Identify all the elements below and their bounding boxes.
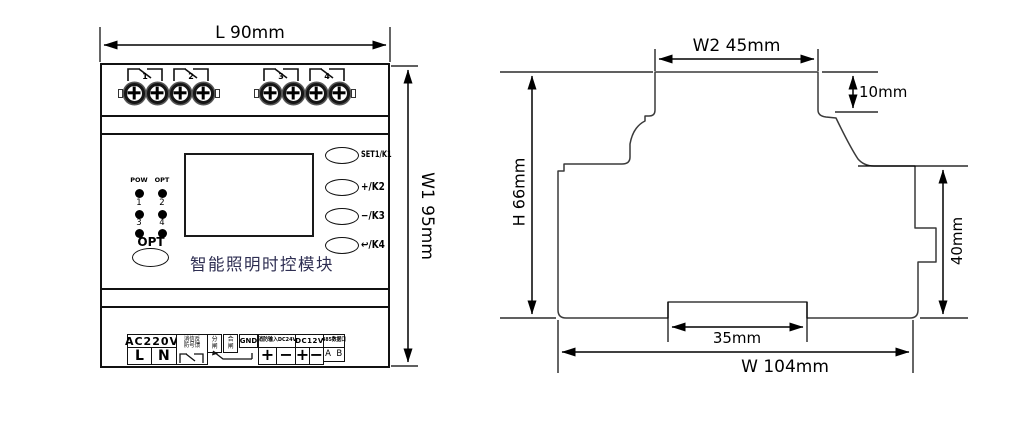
terminal-rs485-label: 485数据口 (322, 338, 346, 344)
terminal-ab-label: A B (325, 350, 342, 359)
button-label-plus-k2: +/K2 (361, 181, 385, 193)
fire-feedback-line2: 防号馈 (184, 343, 201, 350)
terminal-tab (118, 89, 123, 98)
dim-label-l: L 90mm (180, 23, 320, 43)
button-label-return-k4: ↩/K4 (361, 239, 385, 251)
dim-label-40: 40mm (948, 217, 966, 265)
contact-symbol-icon (178, 351, 205, 364)
led-indicator (135, 189, 144, 198)
led-number: 3 (130, 218, 148, 228)
dim-label-35: 35mm (687, 329, 787, 347)
screw-terminal-icon (283, 83, 304, 104)
terminal-tab (254, 89, 259, 98)
terminal-dc-minus: − (309, 347, 324, 365)
terminal-fire-minus: − (276, 347, 296, 365)
section-divider (100, 288, 390, 290)
led-number: 2 (153, 198, 171, 208)
plus-symbol: + (296, 347, 309, 363)
terminal-l-label: L (135, 349, 144, 363)
minus-symbol: − (279, 347, 292, 363)
minus-symbol: − (310, 347, 323, 363)
manual-switch-icon (209, 350, 257, 364)
plus-symbol: + (261, 347, 274, 363)
dim-w1-lines (391, 66, 418, 366)
led-label-opt: OPT (151, 176, 173, 184)
dim-label-h: H 66mm (510, 158, 529, 227)
terminal-n: N (151, 347, 177, 365)
terminal-fire-input-label: 消防输入DC24V (258, 338, 296, 344)
dim-label-w: W 104mm (700, 357, 870, 377)
relay-number: 1 (139, 72, 151, 81)
led-number: 1 (130, 198, 148, 208)
terminal-tab (351, 89, 356, 98)
terminal-rs485-ab: A B (323, 347, 345, 362)
screw-terminal-icon (170, 83, 191, 104)
terminal-gnd: GND (239, 334, 258, 348)
terminal-l: L (127, 347, 152, 365)
button-plus-k2 (325, 179, 359, 196)
dimension-drawing: L 90mm W1 95mm W2 45mm 10mm H 66mm 40mm … (0, 0, 1011, 421)
dim-label-10: 10mm (859, 83, 907, 101)
terminal-dc12v-label: DC12V (295, 338, 324, 345)
section-divider (100, 133, 390, 135)
device-title: 智能照明时控模块 (182, 251, 342, 275)
section-divider (100, 306, 390, 308)
side-profile-outline (558, 72, 936, 318)
lcd-screen (184, 153, 314, 237)
screw-terminal-icon (306, 83, 327, 104)
button-minus-k3 (325, 208, 359, 225)
fire-feedback-text: 消信反 防号馈 (184, 337, 201, 350)
relay-number: 2 (185, 72, 197, 81)
relay-number: 4 (321, 72, 333, 81)
button-label-set-k1: SET1/K1 (361, 150, 392, 160)
terminal-n-label: N (158, 349, 170, 363)
terminal-fire-plus: + (258, 347, 278, 365)
screw-terminal-icon (329, 83, 350, 104)
led-number: 4 (153, 218, 171, 228)
dim-label-w2: W2 45mm (664, 36, 809, 56)
screw-terminal-icon (147, 83, 168, 104)
terminal-fire-feedback: 消信反 防号馈 (176, 334, 209, 365)
terminal-ac220v-label: AC220V (125, 336, 179, 347)
button-label-minus-k3: −/K3 (361, 210, 385, 222)
screw-terminal-icon (260, 83, 281, 104)
relay-number: 3 (275, 72, 287, 81)
opt-button (132, 248, 169, 267)
led-label-pow: POW (128, 176, 150, 184)
section-divider (100, 115, 390, 117)
button-set-k1 (325, 147, 359, 164)
led-indicator (158, 189, 167, 198)
terminal-tab (215, 89, 220, 98)
opt-label: OPT (133, 235, 169, 249)
button-return-k4 (325, 237, 359, 254)
terminal-gnd-label: GND (240, 338, 257, 345)
dim-label-w1: W1 95mm (417, 172, 437, 260)
screw-terminal-icon (193, 83, 214, 104)
screw-terminal-icon (124, 83, 145, 104)
